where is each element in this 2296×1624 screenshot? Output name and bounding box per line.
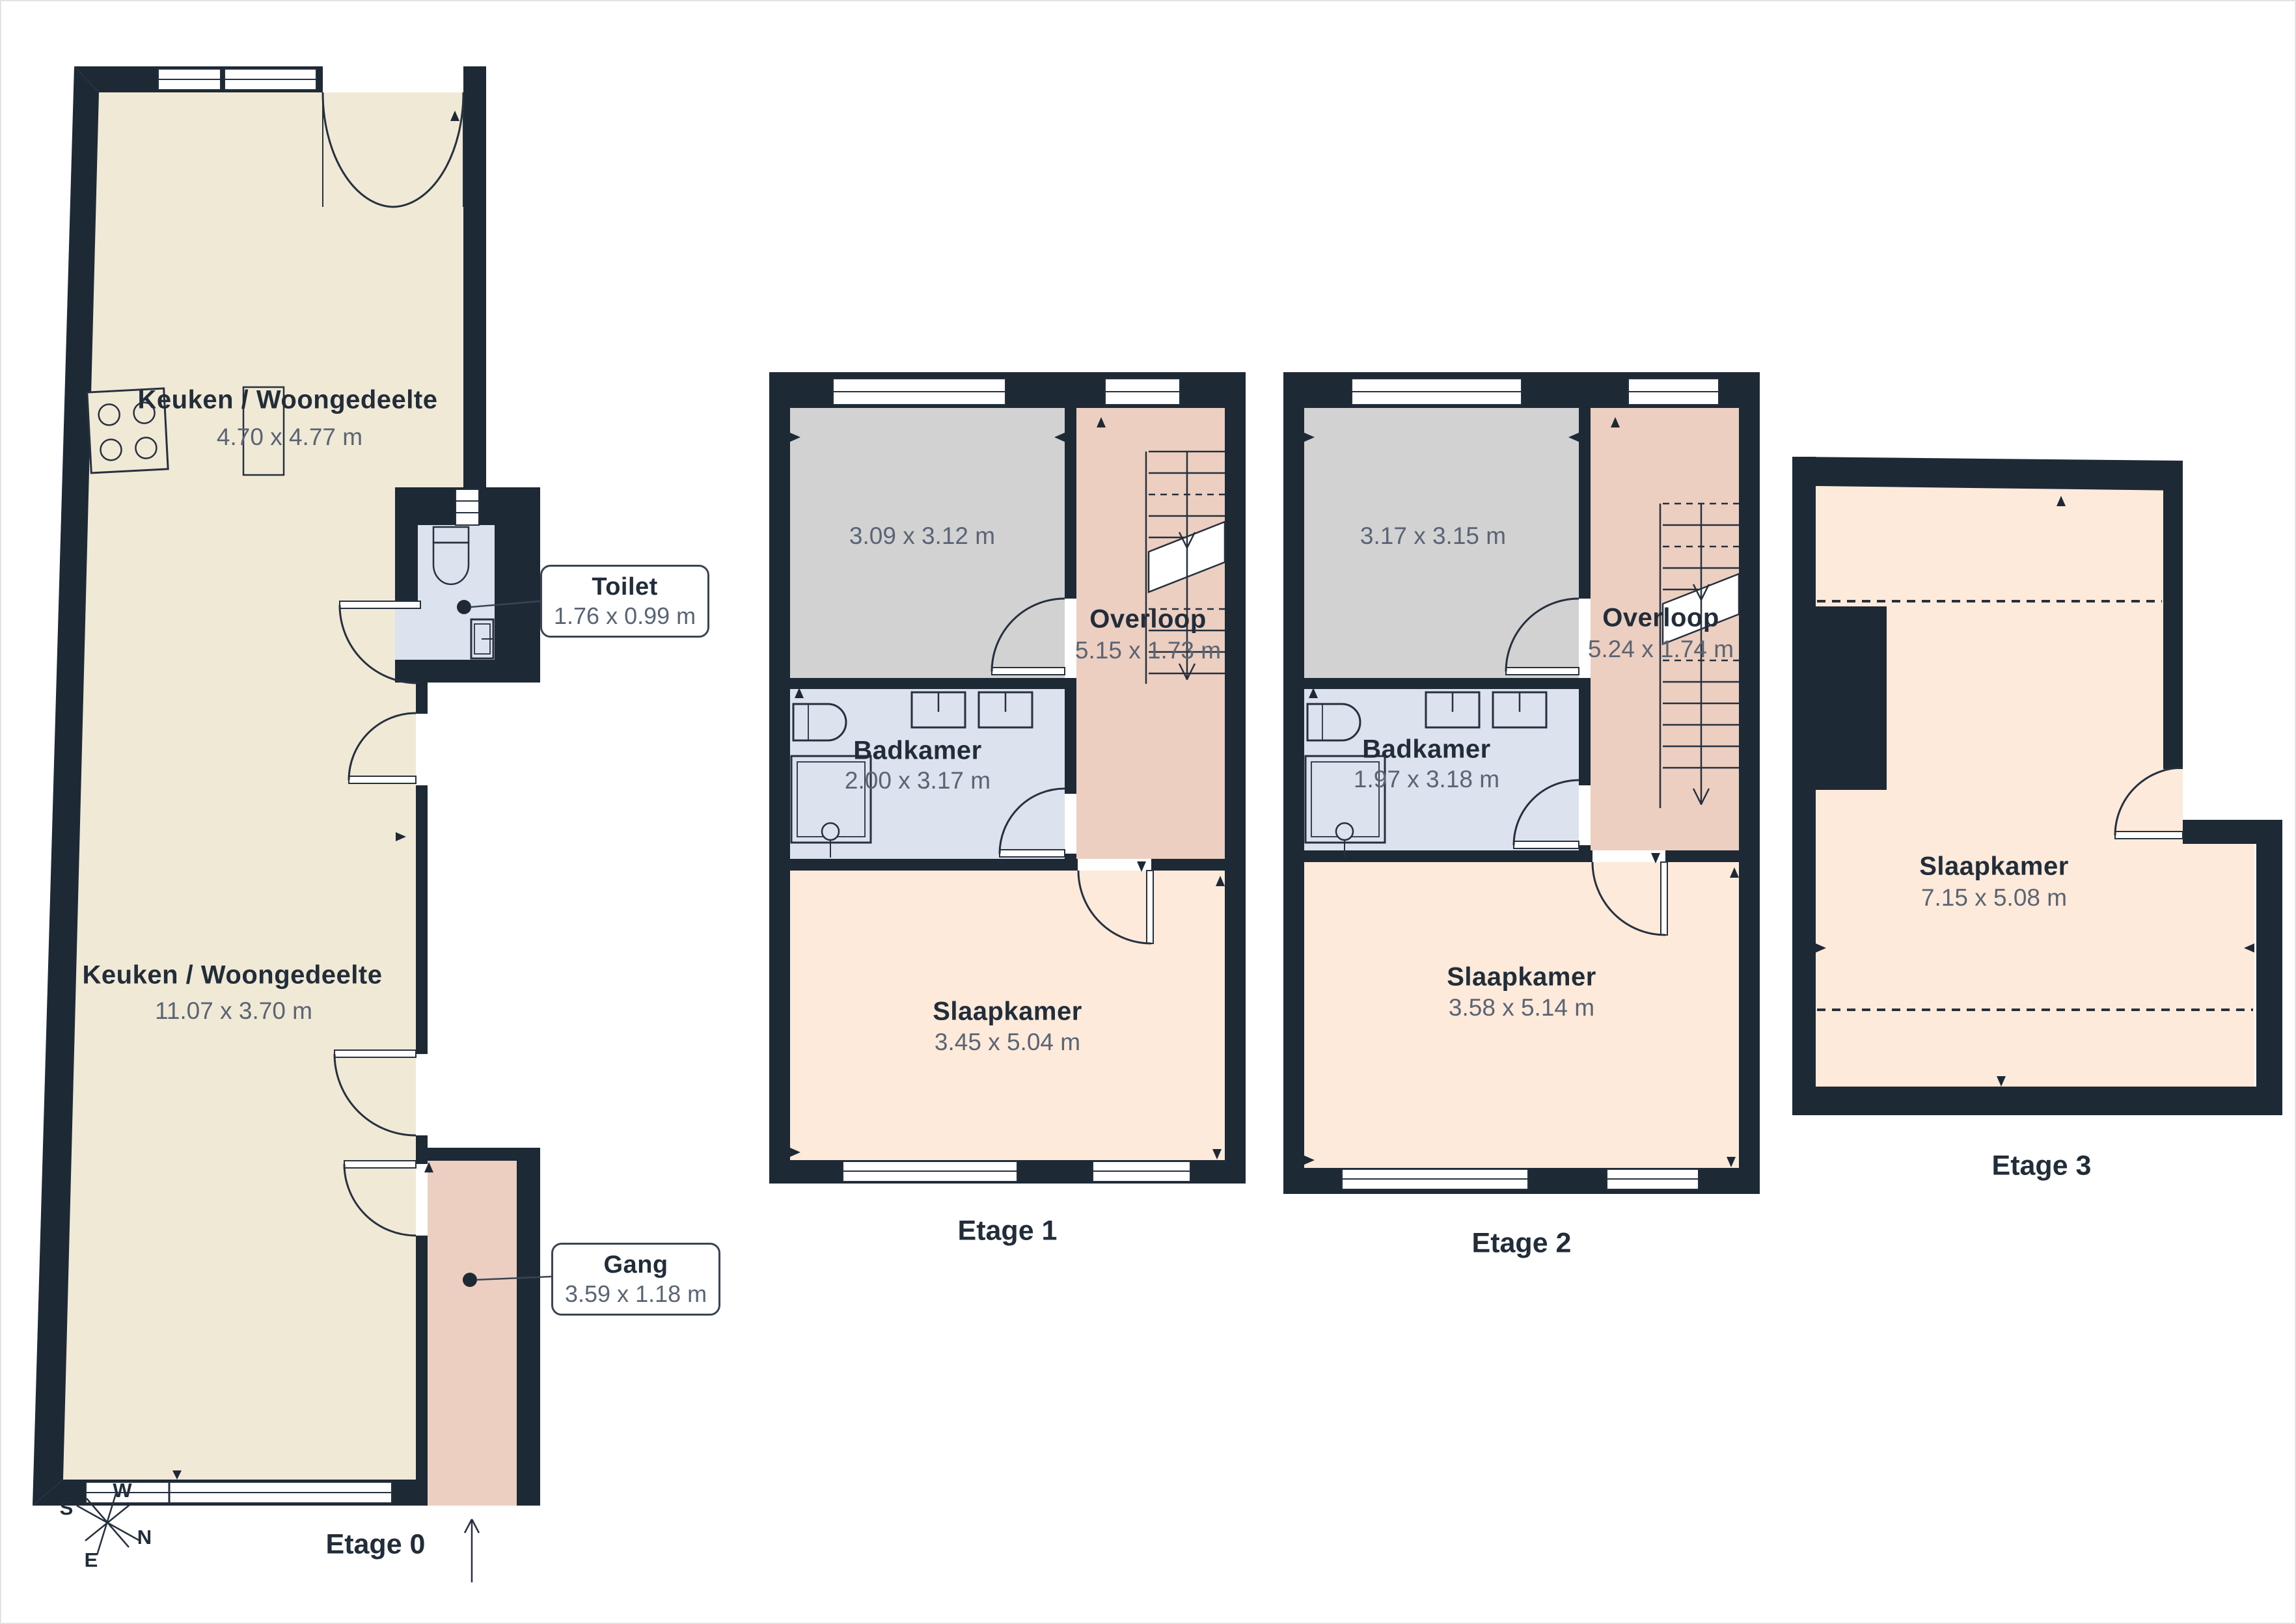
callout-dims: 1.76 x 0.99 m — [554, 602, 696, 630]
compass-s: S — [60, 1496, 74, 1520]
room-dims: 5.24 x 1.74 m — [1588, 636, 1734, 663]
room-dims: 3.58 x 5.14 m — [1449, 994, 1594, 1022]
room-dims: 3.17 x 3.15 m — [1360, 522, 1506, 550]
door-leaf — [349, 776, 416, 783]
leader-dot — [463, 1273, 477, 1287]
toilet-window — [456, 489, 479, 525]
room-dims: 5.15 x 1.73 m — [1075, 637, 1221, 664]
callout-dims: 3.59 x 1.18 m — [565, 1280, 707, 1308]
floorplan-page: Keuken / Woongedeelte 4.70 x 4.77 m Keuk… — [0, 0, 2296, 1624]
etage0-right-wall — [463, 66, 486, 487]
room-label: Badkamer — [853, 737, 981, 766]
entrance-arrow-icon — [465, 1519, 479, 1582]
gang-callout: Gang 3.59 x 1.18 m — [551, 1243, 720, 1316]
room-label: Slaapkamer — [1919, 852, 2069, 882]
etage0-gang-floor — [428, 1161, 517, 1506]
etage3-plan — [1792, 457, 2282, 1115]
etage0-label: Etage 0 — [326, 1529, 426, 1561]
room-dims: 1.97 x 3.18 m — [1354, 766, 1499, 793]
etage1-label: Etage 1 — [958, 1215, 1058, 1247]
room-dims: 2.00 x 3.17 m — [845, 767, 991, 794]
room-label: Keuken / Woongedeelte — [83, 961, 383, 990]
door-leaf — [335, 1050, 416, 1057]
etage0-plan — [33, 66, 551, 1582]
callout-title: Gang — [604, 1251, 668, 1279]
etage2-label: Etage 2 — [1472, 1228, 1572, 1260]
callout-title: Toilet — [592, 573, 658, 601]
room-label: Slaapkamer — [1447, 963, 1596, 992]
room-dims: 3.09 x 3.12 m — [849, 522, 995, 550]
door-leaf — [1147, 871, 1153, 943]
door-leaf — [2115, 832, 2183, 839]
etage0-keuken-floor — [63, 92, 463, 1480]
marker-icon — [1651, 853, 1660, 863]
room-dims: 3.45 x 5.04 m — [935, 1029, 1080, 1056]
door-leaf — [340, 601, 420, 608]
room-dims: 7.15 x 5.08 m — [1921, 884, 2067, 912]
room-label: Slaapkamer — [933, 997, 1082, 1027]
door-leaf — [1000, 850, 1065, 857]
door-leaf — [344, 1161, 416, 1168]
room-label: Overloop — [1089, 605, 1207, 634]
room-dims: 4.70 x 4.77 m — [217, 424, 362, 451]
room-label: Keuken / Woongedeelte — [138, 386, 438, 415]
door-leaf — [1514, 841, 1579, 848]
leader-dot — [457, 600, 471, 614]
compass-w: W — [113, 1479, 131, 1502]
etage1-plan — [769, 372, 1246, 1184]
compass-e: E — [85, 1549, 98, 1572]
room-label: Badkamer — [1362, 735, 1490, 765]
gang-right-wall — [517, 1148, 540, 1506]
toilet-callout: Toilet 1.76 x 0.99 m — [540, 565, 709, 638]
door-leaf — [1506, 668, 1579, 675]
room-dims: 11.07 x 3.70 m — [155, 997, 312, 1025]
etage3-void-block — [1816, 606, 1887, 790]
marker-icon — [1137, 861, 1146, 872]
door-leaf — [992, 668, 1065, 675]
room-label: Overloop — [1602, 604, 1719, 633]
door-leaf — [1661, 862, 1667, 935]
floorplan-drawing — [1, 1, 2296, 1624]
etage3-label: Etage 3 — [1992, 1150, 2092, 1182]
compass-n: N — [137, 1526, 152, 1549]
